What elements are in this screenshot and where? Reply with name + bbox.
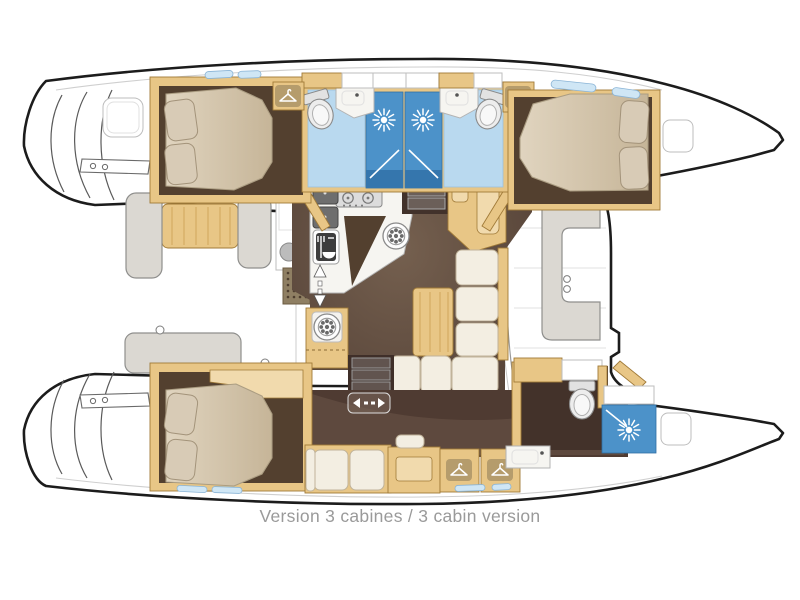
cleat: [156, 326, 164, 334]
pillow: [163, 392, 198, 436]
sofa-cushion: [350, 450, 384, 490]
hanger-icon: [275, 85, 301, 107]
saloon-table: [413, 288, 453, 356]
cockpit-bench-left: [126, 193, 162, 278]
overhead-cabinets: [302, 73, 502, 88]
pillow: [164, 439, 198, 482]
sofa-armrest: [306, 449, 315, 491]
wardrobe: [273, 82, 304, 110]
owner-shower: [602, 386, 656, 453]
galley-vent-icon: [383, 223, 409, 249]
fridge-icon: [313, 230, 339, 264]
pillow: [619, 100, 650, 144]
starboard-bow-hatch: [661, 413, 691, 445]
pillow: [619, 146, 649, 189]
owner-aft-cabin: [150, 363, 312, 491]
stairs-starboard-hull: [348, 355, 394, 395]
catamaran-floorplan: Version 3 cabines / 3 cabin version: [0, 0, 800, 600]
port-bathrooms: [273, 73, 534, 192]
caption: Version 3 cabines / 3 cabin version: [0, 506, 800, 527]
shower-stall: [405, 92, 442, 188]
sofa-cushion: [314, 450, 348, 490]
port-forward-cabin: [508, 90, 660, 210]
cabinet-vent-icon: [314, 314, 340, 340]
hanger-icon: [446, 459, 472, 481]
port-bow-hatch: [663, 120, 693, 152]
pillow: [163, 98, 198, 142]
port-transom-bracket: [80, 159, 150, 174]
sliding-door-arrow-icon: [348, 393, 390, 413]
toilet-icon: [569, 381, 595, 419]
starboard-transom-bracket: [80, 393, 150, 408]
pillow: [164, 143, 198, 186]
washbasin: [506, 446, 550, 468]
stool: [396, 435, 424, 448]
cockpit-table: [162, 204, 238, 248]
cockpit-bench-right: [238, 196, 271, 268]
companionway-cabinet: [306, 308, 348, 368]
